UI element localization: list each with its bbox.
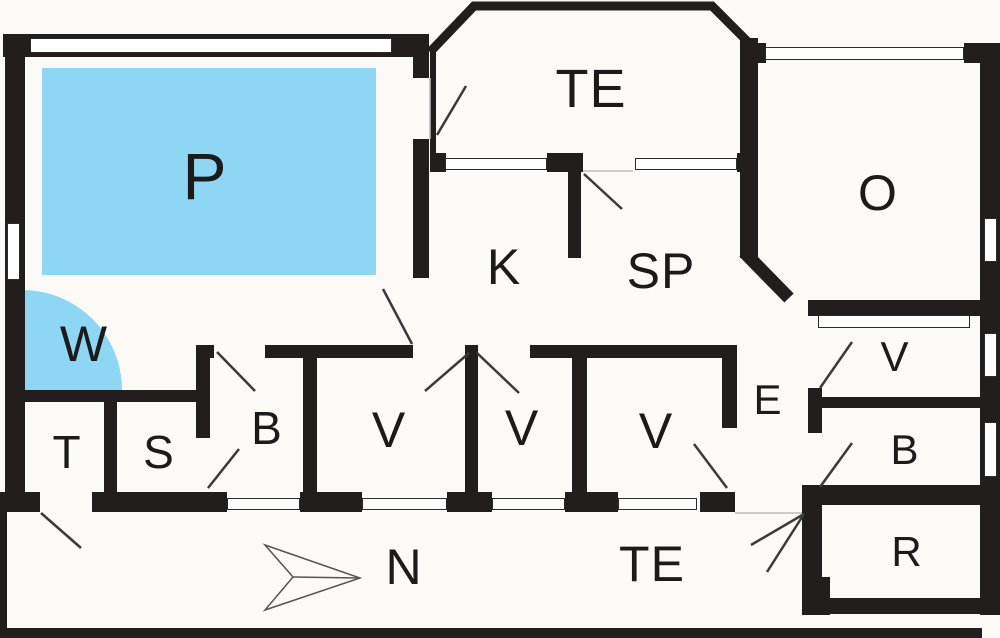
room-label-v3: V (639, 406, 673, 456)
room-label-e: E (753, 379, 782, 421)
door-swing (217, 352, 255, 391)
room-label-v1: V (372, 405, 406, 455)
door-swing (383, 289, 412, 344)
floor-plan: PTEOKSPWTSBVVVEVBRTEN (0, 0, 1000, 638)
door-swing (425, 353, 469, 391)
door-swing (477, 353, 519, 393)
room-label-b-right: B (890, 429, 919, 471)
room-label-v-right: V (880, 336, 909, 378)
door-swing (437, 86, 466, 135)
door-swing (751, 514, 804, 545)
room-label-v2: V (505, 403, 539, 453)
room-label-te-bottom: TE (619, 539, 685, 589)
door-swing (694, 444, 727, 488)
room-label-te-top: TE (555, 62, 626, 116)
door-swing (584, 174, 622, 209)
terrace-bay-outline (430, 6, 754, 52)
room-label-w: W (60, 319, 108, 369)
door-and-symbol-layer (0, 0, 1000, 638)
room-label-sp: SP (627, 246, 696, 296)
door-swing (820, 342, 852, 388)
room-label-k: K (487, 242, 521, 292)
room-label-n: N (385, 542, 422, 592)
north-arrow-midline (293, 577, 360, 578)
room-label-s: S (143, 429, 175, 475)
room-label-o: O (858, 168, 898, 218)
room-label-t: T (52, 429, 81, 475)
chimney-corner-wall (744, 252, 789, 298)
room-label-r: R (891, 531, 922, 573)
room-label-b-left: B (251, 405, 283, 451)
door-swing (41, 513, 81, 548)
room-label-p: P (182, 143, 227, 209)
door-swing (208, 449, 239, 488)
door-swing (820, 443, 852, 487)
door-swing (767, 514, 804, 572)
